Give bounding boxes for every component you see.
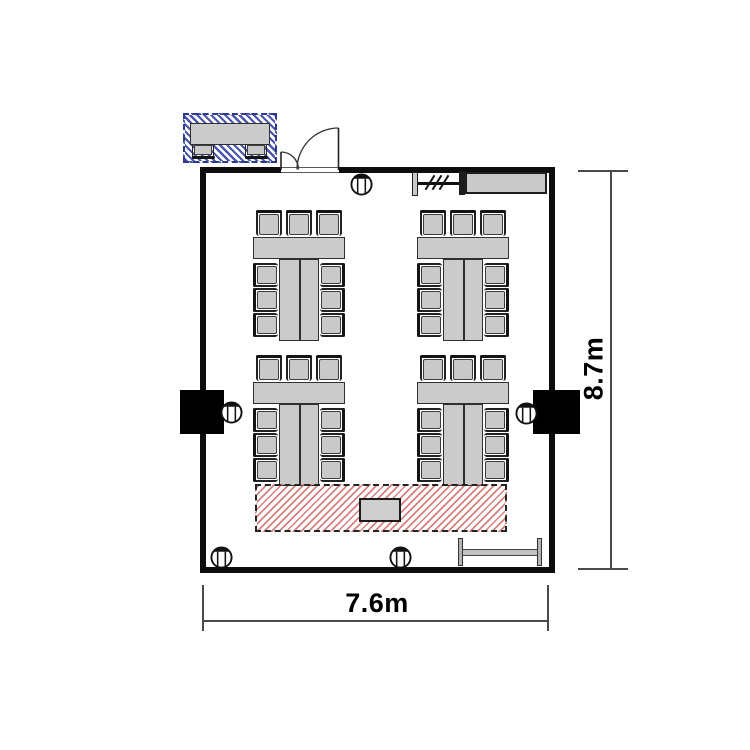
chair bbox=[484, 433, 509, 457]
stage-area bbox=[255, 484, 507, 532]
folded-table-bar bbox=[458, 549, 542, 556]
folded-table-end bbox=[537, 538, 542, 566]
folded-table-end bbox=[458, 538, 463, 566]
table-vertical-pair bbox=[443, 259, 483, 341]
table-horizontal bbox=[253, 237, 345, 259]
chair bbox=[316, 355, 342, 381]
chair bbox=[320, 288, 345, 312]
table-horizontal bbox=[417, 382, 509, 404]
chair bbox=[320, 433, 345, 457]
chair bbox=[417, 408, 442, 432]
table-group bbox=[253, 355, 345, 486]
dimension-tick bbox=[547, 585, 549, 631]
dimension-height-label: 8.7m bbox=[578, 336, 609, 400]
chair bbox=[484, 458, 509, 482]
dimension-tick bbox=[578, 170, 628, 172]
table-group bbox=[417, 210, 509, 341]
chair bbox=[420, 355, 446, 381]
dimension-width-label: 7.6m bbox=[307, 588, 447, 619]
chair bbox=[417, 458, 442, 482]
chair bbox=[253, 458, 278, 482]
chair bbox=[253, 288, 278, 312]
chair bbox=[253, 313, 278, 337]
chair bbox=[320, 313, 345, 337]
chair bbox=[420, 210, 446, 236]
table-vertical-pair bbox=[443, 404, 483, 486]
pillar-left bbox=[180, 390, 224, 434]
chair bbox=[450, 355, 476, 381]
chair bbox=[316, 210, 342, 236]
chair bbox=[253, 433, 278, 457]
chair bbox=[253, 263, 278, 287]
chair bbox=[320, 408, 345, 432]
reception-chair bbox=[245, 144, 267, 159]
dimension-line-horizontal bbox=[203, 620, 549, 622]
chair bbox=[320, 458, 345, 482]
table-vertical-pair bbox=[279, 259, 319, 341]
dimension-tick bbox=[202, 585, 204, 631]
chair bbox=[484, 313, 509, 337]
chair bbox=[417, 263, 442, 287]
entrance-door-icon bbox=[270, 118, 350, 180]
chair bbox=[480, 210, 506, 236]
chair bbox=[286, 210, 312, 236]
chair bbox=[484, 408, 509, 432]
chair bbox=[480, 355, 506, 381]
chair bbox=[484, 288, 509, 312]
stage-podium bbox=[359, 498, 401, 522]
table-group bbox=[253, 210, 345, 341]
reception-table bbox=[190, 123, 270, 145]
chair bbox=[256, 355, 282, 381]
power-outlet-icon bbox=[220, 401, 243, 424]
table-vertical-pair bbox=[279, 404, 319, 486]
wall-cabinet bbox=[465, 172, 547, 194]
chair bbox=[450, 210, 476, 236]
power-outlet-icon bbox=[210, 546, 233, 569]
table-horizontal bbox=[253, 382, 345, 404]
chair bbox=[417, 288, 442, 312]
dimension-tick bbox=[578, 568, 628, 570]
reception-area bbox=[183, 113, 277, 163]
chair bbox=[256, 210, 282, 236]
table-group bbox=[417, 355, 509, 486]
floor-plan-canvas: 7.6m 8.7m bbox=[0, 0, 750, 750]
chair bbox=[253, 408, 278, 432]
chair bbox=[320, 263, 345, 287]
reception-chair bbox=[192, 144, 214, 159]
chair bbox=[417, 313, 442, 337]
power-outlet-icon bbox=[389, 546, 412, 569]
dimension-height-label-wrap: 8.7m bbox=[524, 298, 664, 438]
power-outlet-icon bbox=[350, 173, 373, 196]
table-horizontal bbox=[417, 237, 509, 259]
chair bbox=[286, 355, 312, 381]
chair bbox=[484, 263, 509, 287]
chair bbox=[417, 433, 442, 457]
